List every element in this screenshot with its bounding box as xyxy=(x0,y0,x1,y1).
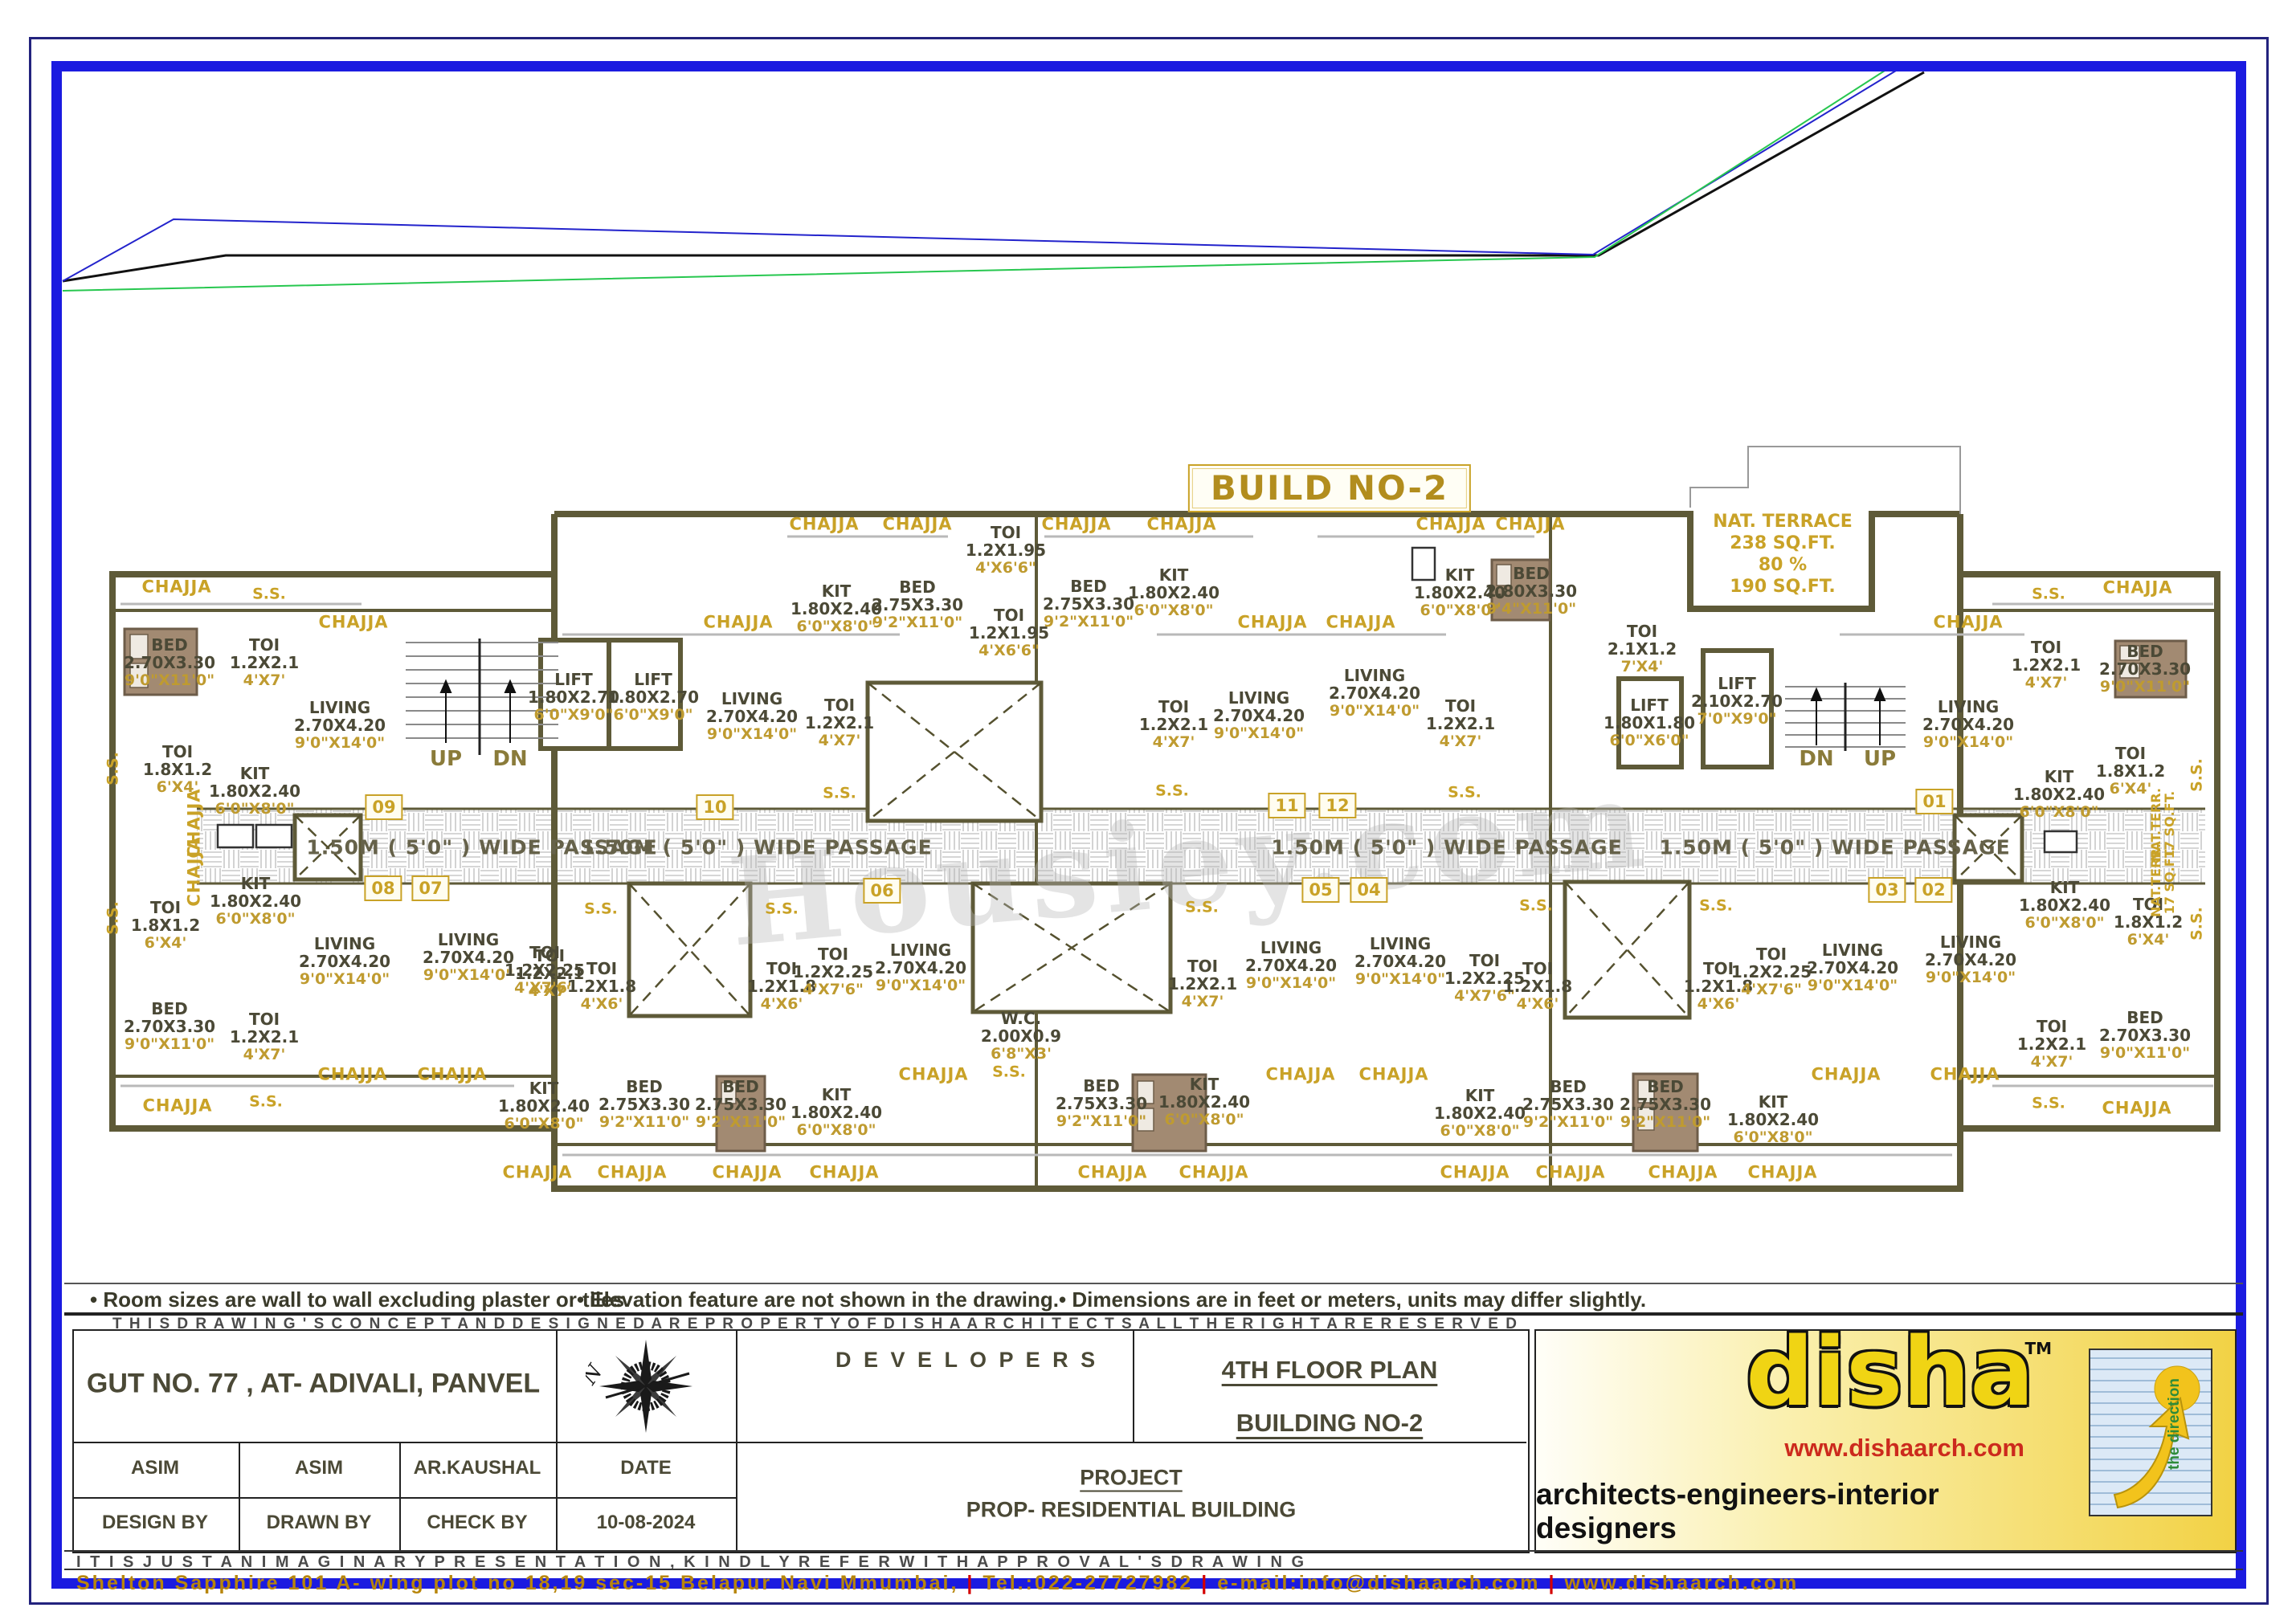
room-label-toi: TOI1.8X1.26'X4' xyxy=(131,899,200,952)
unit-number-02: 02 xyxy=(1914,877,1952,903)
building-no-title: BUILDING NO-2 xyxy=(1236,1409,1424,1438)
unit-number-12: 12 xyxy=(1318,793,1356,818)
unit-number-08: 08 xyxy=(364,875,402,901)
room-label-kit: KIT1.80X2.406'0"X8'0" xyxy=(210,875,301,928)
room-label-toi: TOI1.2X2.254'X7'6" xyxy=(793,945,873,998)
room-label-toi: TOI1.2X2.14'X7' xyxy=(2012,639,2081,692)
chajja-label: CHAJJA xyxy=(1179,1165,1248,1181)
chajja-label: CHAJJA xyxy=(317,1067,387,1083)
room-label-living: LIVING2.70X4.209'0"X14'0" xyxy=(1354,935,1446,988)
room-label-living: LIVING2.70X4.209'0"X14'0" xyxy=(1213,689,1305,742)
room-label-kit: KIT1.80X2.406'0"X8'0" xyxy=(1434,1087,1526,1140)
chajja-label: CHAJJA xyxy=(1747,1165,1817,1181)
note-dimensions: • Dimensions are in feet or meters, unit… xyxy=(1059,1289,1646,1310)
chajja-label: CHAJJA xyxy=(1146,516,1216,533)
chajja-label: CHAJJA xyxy=(1440,1165,1510,1181)
chajja-label: CHAJJA xyxy=(809,1165,879,1181)
room-label-toi: TOI1.2X2.14'X7' xyxy=(805,696,874,749)
project-label: PROJECT xyxy=(1080,1466,1183,1491)
chajja-label: CHAJJA xyxy=(703,614,773,631)
the-direction-text: the direction xyxy=(2166,1378,2184,1470)
room-label-bed: BED2.70X3.309'0"X11'0" xyxy=(2099,643,2191,696)
room-label-kit: KIT1.80X2.406'0"X8'0" xyxy=(498,1079,590,1132)
ss-label: S.S. xyxy=(992,1065,1026,1080)
room-label-wc: W.C.2.00X0.96'8"X3' xyxy=(981,1010,1061,1063)
floor-plan-title: 4TH FLOOR PLAN xyxy=(1222,1356,1438,1385)
room-label-kit: KIT1.80X2.406'0"X8'0" xyxy=(1727,1093,1819,1146)
ss-label: S.S. xyxy=(1448,785,1481,801)
stair-dn-label: DN xyxy=(1799,749,1833,769)
chajja-label: CHAJJA xyxy=(142,1098,212,1115)
stair-up-label: UP xyxy=(430,749,462,769)
room-label-living: LIVING2.70X4.209'0"X14'0" xyxy=(1245,939,1337,992)
chajja-label: CHAJJA xyxy=(417,1067,487,1083)
unit-number-07: 07 xyxy=(411,875,449,901)
room-label-toi: TOI1.2X1.84'X6' xyxy=(1503,960,1572,1013)
tb-col-divider-1 xyxy=(239,1442,240,1550)
chajja-label: CHAJJA xyxy=(502,1165,572,1181)
ss-label: S.S. xyxy=(1155,784,1189,799)
stair-up-label: UP xyxy=(1864,749,1896,769)
project-name: PROP- RESIDENTIAL BUILDING xyxy=(966,1498,1297,1523)
ss-label: S.S. xyxy=(1185,900,1219,916)
room-label-toi: TOI1.2X2.14'X7' xyxy=(2017,1018,2086,1071)
unit-number-06: 06 xyxy=(863,878,901,904)
chajja-label: CHAJJA xyxy=(1933,614,2003,631)
chajja-label: CHAJJA xyxy=(1811,1067,1881,1083)
room-label-toi: TOI1.2X2.14'X7' xyxy=(1139,698,1208,751)
disha-logo-block: disha TM www.dishaarch.com architects-en… xyxy=(1534,1329,2237,1553)
room-label-bed: BED2.80X3.309'4"X11'0" xyxy=(1485,565,1577,618)
room-label-lift: LIFT1.80X2.706'0"X9'0" xyxy=(528,671,619,724)
ss-label: S.S. xyxy=(106,901,121,935)
room-label-toi: TOI1.2X2.14'X7' xyxy=(230,636,299,689)
ss-label: S.S. xyxy=(2190,907,2205,941)
disha-website: www.dishaarch.com xyxy=(1784,1434,2024,1463)
room-label-kit: KIT1.80X2.406'0"X8'0" xyxy=(1128,566,1219,619)
room-label-bed: BED2.70X3.309'0"X11'0" xyxy=(2099,1009,2191,1062)
tb-name-3: AR.KAUSHAL xyxy=(414,1457,541,1479)
unit-number-04: 04 xyxy=(1350,877,1387,903)
chajja-label: CHAJJA xyxy=(1358,1067,1428,1083)
room-label-lift: LIFT1.80X1.806'0"X6'0" xyxy=(1604,696,1695,749)
compass-rose-icon: N xyxy=(586,1324,706,1444)
room-label-living: LIVING2.70X4.209'0"X14'0" xyxy=(1329,667,1420,720)
chajja-label: CHAJJA xyxy=(789,516,859,533)
nat-terr-small-label: NAT.TERR.17 SQ.FT. xyxy=(2149,843,2176,917)
chajja-label: CHAJJA xyxy=(318,614,388,631)
room-label-lift: LIFT1.80X2.706'0"X9'0" xyxy=(607,671,699,724)
room-label-bed: BED2.75X3.309'2"X11'0" xyxy=(1056,1077,1147,1130)
room-label-bed: BED2.75X3.309'2"X11'0" xyxy=(695,1078,786,1131)
room-label-toi: TOI1.2X2.254'X7'6" xyxy=(1731,945,1812,998)
unit-number-01: 01 xyxy=(1915,789,1953,814)
passage-label: 1.50M ( 5'0" ) WIDE PASSAGE xyxy=(1271,838,1622,858)
room-label-bed: BED2.75X3.309'2"X11'0" xyxy=(1522,1078,1614,1131)
room-label-bed: BED2.70X3.309'0"X11'0" xyxy=(124,636,215,689)
tb-name-2: ASIM xyxy=(295,1457,343,1479)
room-label-toi: TOI1.2X2.14'X7' xyxy=(1168,957,1237,1010)
chajja-label: CHAJJA xyxy=(712,1165,782,1181)
room-label-toi: TOI2.1X1.27'X4' xyxy=(1608,622,1677,675)
plan-title: BUILD NO-2 xyxy=(1188,464,1471,512)
tb-check-by: CHECK BY xyxy=(427,1512,527,1534)
room-label-kit: KIT1.80X2.406'0"X8'0" xyxy=(791,1086,882,1139)
chajja-label: CHAJJA xyxy=(898,1067,968,1083)
terrace-label: NAT. TERRACE238 SQ.FT.80 %190 SQ.FT. xyxy=(1713,511,1853,598)
disha-grid-logo-icon xyxy=(2089,1349,2212,1516)
tb-design-by: DESIGN BY xyxy=(102,1512,208,1534)
ss-label: S.S. xyxy=(106,752,121,785)
room-label-bed: BED2.75X3.309'2"X11'0" xyxy=(872,578,963,631)
footer-divider-1 xyxy=(64,1550,2243,1552)
tb-col-divider-2 xyxy=(399,1442,401,1550)
chajja-label: CHAJJA xyxy=(2102,580,2172,597)
svg-text:N: N xyxy=(586,1360,608,1390)
room-label-bed: BED2.70X3.309'0"X11'0" xyxy=(124,1000,215,1053)
footer-divider-2 xyxy=(64,1569,2243,1570)
chajja-label: CHAJJA xyxy=(1416,516,1485,533)
room-label-living: LIVING2.70X4.209'0"X14'0" xyxy=(1922,698,2014,751)
ss-label: S.S. xyxy=(2032,1096,2065,1112)
chajja-label: CHAJJA xyxy=(1535,1165,1605,1181)
tb-center-hdivider xyxy=(736,1442,1526,1443)
unit-number-03: 03 xyxy=(1868,877,1906,903)
unit-number-10: 10 xyxy=(696,794,733,820)
chajja-label: CHAJJA xyxy=(597,1165,667,1181)
ss-label: S.S. xyxy=(2190,758,2205,792)
chajja-label: CHAJJA xyxy=(1237,614,1307,631)
room-label-living: LIVING2.70X4.209'0"X14'0" xyxy=(875,941,966,994)
unit-number-05: 05 xyxy=(1301,877,1339,903)
room-label-toi: TOI1.2X1.954'X6'6" xyxy=(966,524,1046,577)
unit-number-09: 09 xyxy=(365,794,402,820)
tb-drawn-by: DRAWN BY xyxy=(267,1512,372,1534)
passage-label: 1.50M ( 5'0" ) WIDE PASSAGE xyxy=(1659,838,2010,858)
room-label-toi: TOI1.2X2.14'X7' xyxy=(230,1010,299,1063)
room-label-kit: KIT1.80X2.406'0"X8'0" xyxy=(209,765,300,818)
ss-label: S.S. xyxy=(823,786,856,802)
unit-number-11: 11 xyxy=(1268,793,1305,818)
disha-logo-text: disha xyxy=(1746,1324,2034,1419)
room-label-living: LIVING2.70X4.209'0"X14'0" xyxy=(423,931,514,984)
chajja-label: CHAJJA xyxy=(186,836,203,906)
room-label-bed: BED2.75X3.309'2"X11'0" xyxy=(599,1078,690,1131)
tb-center-divider xyxy=(1133,1329,1134,1442)
ss-label: S.S. xyxy=(584,902,618,917)
room-label-living: LIVING2.70X4.209'0"X14'0" xyxy=(299,935,390,988)
note-elevation: • Elevation feature are not shown in the… xyxy=(577,1289,1059,1310)
ss-label: S.S. xyxy=(1519,899,1553,914)
room-label-toi: TOI1.2X1.84'X6' xyxy=(567,960,636,1013)
chajja-label: CHAJJA xyxy=(1495,516,1565,533)
chajja-label: CHAJJA xyxy=(1077,1165,1147,1181)
room-label-living: LIVING2.70X4.209'0"X14'0" xyxy=(294,699,386,752)
chajja-label: CHAJJA xyxy=(1326,614,1395,631)
room-label-toi: TOI1.2X2.14'X7' xyxy=(1426,697,1495,750)
chajja-label: CHAJJA xyxy=(882,516,952,533)
chajja-label: CHAJJA xyxy=(1265,1067,1335,1083)
tb-col-divider-3 xyxy=(556,1329,558,1550)
room-label-kit: KIT1.80X2.406'0"X8'0" xyxy=(2013,768,2105,821)
room-label-living: LIVING2.70X4.209'0"X14'0" xyxy=(1807,941,1898,994)
room-label-toi: TOI1.2X1.954'X6'6" xyxy=(969,606,1049,659)
site-title: GUT NO. 77 , AT- ADIVALI, PANVEL xyxy=(87,1369,540,1400)
room-label-kit: KIT1.80X2.406'0"X8'0" xyxy=(1158,1075,1250,1128)
chajja-label: CHAJJA xyxy=(1041,516,1111,533)
chajja-label: CHAJJA xyxy=(1648,1165,1718,1181)
ss-label: S.S. xyxy=(1699,899,1733,914)
footer-address: Shelton Sapphire 101 A- wing plot no 18,… xyxy=(76,1573,1799,1593)
tb-date-label: DATE xyxy=(620,1457,672,1479)
ss-label: S.S. xyxy=(765,902,799,917)
tb-name-1: ASIM xyxy=(131,1457,179,1479)
stair-dn-label: DN xyxy=(492,749,527,769)
chajja-label: CHAJJA xyxy=(2102,1100,2171,1117)
chajja-label: CHAJJA xyxy=(141,579,211,596)
ss-label: S.S. xyxy=(2032,587,2065,602)
passage-label: 1.50M ( 5'0" ) WIDE PASSAGE xyxy=(581,838,932,858)
room-label-kit: KIT1.80X2.406'0"X8'0" xyxy=(791,582,882,635)
disha-tagline: architects-engineers-interior designers xyxy=(1536,1478,2042,1545)
notes-divider-top xyxy=(64,1283,2243,1284)
note-room-sizes: • Room sizes are wall to wall excluding … xyxy=(90,1289,630,1310)
ss-label: S.S. xyxy=(249,1095,283,1110)
room-label-living: LIVING2.70X4.209'0"X14'0" xyxy=(1925,933,2016,986)
room-label-bed: BED2.75X3.309'2"X11'0" xyxy=(1620,1078,1711,1131)
room-label-living: LIVING2.70X4.209'0"X14'0" xyxy=(706,690,798,743)
tb-date-value: 10-08-2024 xyxy=(597,1512,696,1534)
room-label-bed: BED2.75X3.309'2"X11'0" xyxy=(1043,577,1134,630)
chajja-label: CHAJJA xyxy=(1930,1067,2000,1083)
ss-label: S.S. xyxy=(252,587,286,602)
room-label-kit: KIT1.80X2.406'0"X8'0" xyxy=(2019,879,2110,932)
room-label-lift: LIFT2.10X2.707'0"X9'0" xyxy=(1691,675,1783,728)
drawing-sheet: Housiey.com BUILD NO-2 NAT. TERRACE238 S… xyxy=(0,0,2296,1624)
developers-label: D E V E L O P E R S xyxy=(835,1348,1098,1373)
trademark-symbol: TM xyxy=(2024,1339,2052,1358)
